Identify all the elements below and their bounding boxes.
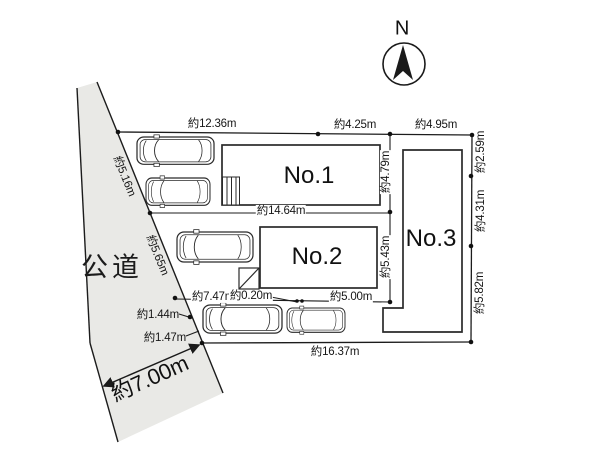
- car-icon: [146, 176, 210, 208]
- dim-right-middle: 約4.31m: [472, 190, 488, 232]
- dim-lot1-depth: 約4.79m: [380, 150, 392, 194]
- road-name-label: 公道: [81, 246, 143, 285]
- dim-frontage-seg3: 約1.44m: [137, 306, 179, 322]
- dim-right-lower: 約5.82m: [471, 272, 487, 314]
- north-compass-icon: [383, 43, 425, 85]
- lot1-label: No.1: [284, 162, 335, 190]
- site-plan-drawing: [0, 0, 600, 450]
- lot1-stairs-hatch: [223, 177, 240, 205]
- lot3-label: No.3: [406, 225, 457, 253]
- car-icon: [137, 135, 214, 167]
- dim-parking-gap: 約0.20m: [229, 290, 273, 302]
- site-plan: N 公道 約7.00m No.1 No.2 No.3 約12.36m 約4.25…: [0, 0, 600, 450]
- car-icon: [203, 303, 282, 336]
- north-label: N: [395, 18, 409, 41]
- car-icon: [177, 230, 253, 265]
- dim-top-middle: 約4.25m: [334, 116, 376, 132]
- car-icon: [287, 306, 345, 334]
- dim-frontage-seg4: 約1.47m: [144, 329, 186, 345]
- dim-parking-width2: 約5.00m: [329, 291, 373, 303]
- dim-bottom: 約16.37m: [311, 343, 359, 359]
- dim-lot2-depth: 約5.43m: [380, 235, 392, 279]
- dim-right-upper: 約2.59m: [472, 131, 488, 173]
- lot2-label: No.2: [292, 243, 343, 271]
- dim-lot1-width: 約14.64m: [256, 205, 306, 217]
- dim-top-right: 約4.95m: [415, 116, 457, 132]
- dim-top-left: 約12.36m: [188, 115, 236, 131]
- lot2-entrance-mark: [239, 268, 259, 289]
